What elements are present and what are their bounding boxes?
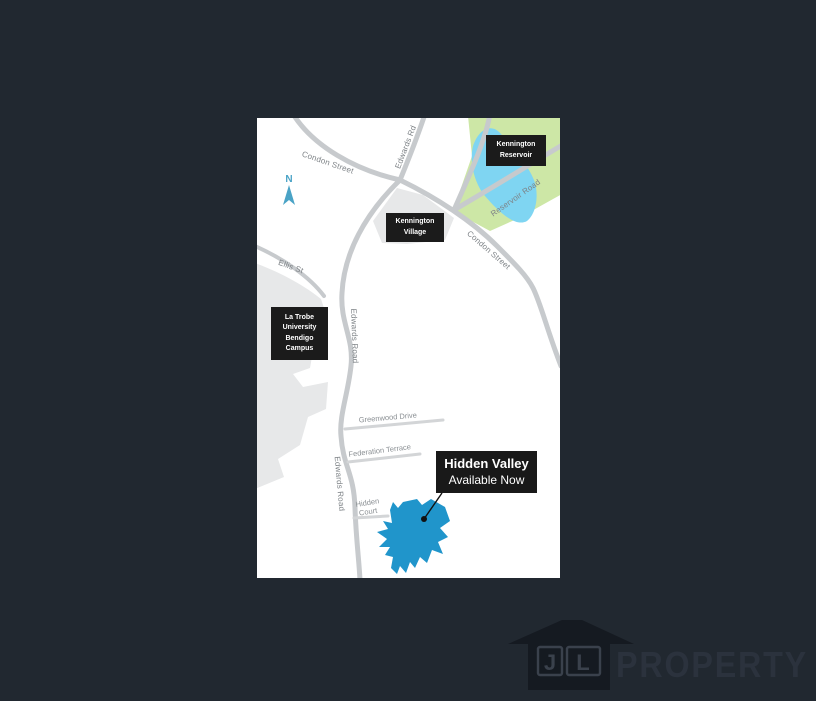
street-label-hidden-court: Hidden Court: [355, 496, 383, 518]
jl-property-logo: J L PROPERTY: [505, 614, 816, 696]
location-map: Condon Street Edwards Rd Condon Street R…: [257, 118, 560, 578]
logo-letter-j: J: [544, 650, 556, 675]
street-label-edwards-road-upper: Edwards Road: [349, 308, 360, 363]
north-arrow-icon: N: [283, 174, 295, 205]
street-label-ellis-st: Ellis St: [277, 258, 305, 276]
label-kennington-village: Kennington Village: [386, 213, 444, 242]
callout-title: Hidden Valley: [444, 456, 529, 472]
label-kennington-reservoir: Kennington Reservoir: [486, 135, 546, 166]
callout-pointer-dot: [421, 516, 427, 522]
hidden-valley-estate-shape: [377, 499, 450, 574]
callout-subtitle: Available Now: [449, 473, 525, 488]
jl-property-logo-svg: J L PROPERTY: [505, 614, 816, 696]
hidden-valley-callout: Hidden Valley Available Now: [436, 451, 537, 493]
logo-brand-text: PROPERTY: [616, 644, 808, 685]
north-arrow-label: N: [285, 174, 292, 185]
university-grounds-area: [257, 263, 328, 489]
logo-letter-l: L: [576, 650, 589, 675]
label-la-trobe-university: La Trobe University Bendigo Campus: [271, 307, 328, 360]
